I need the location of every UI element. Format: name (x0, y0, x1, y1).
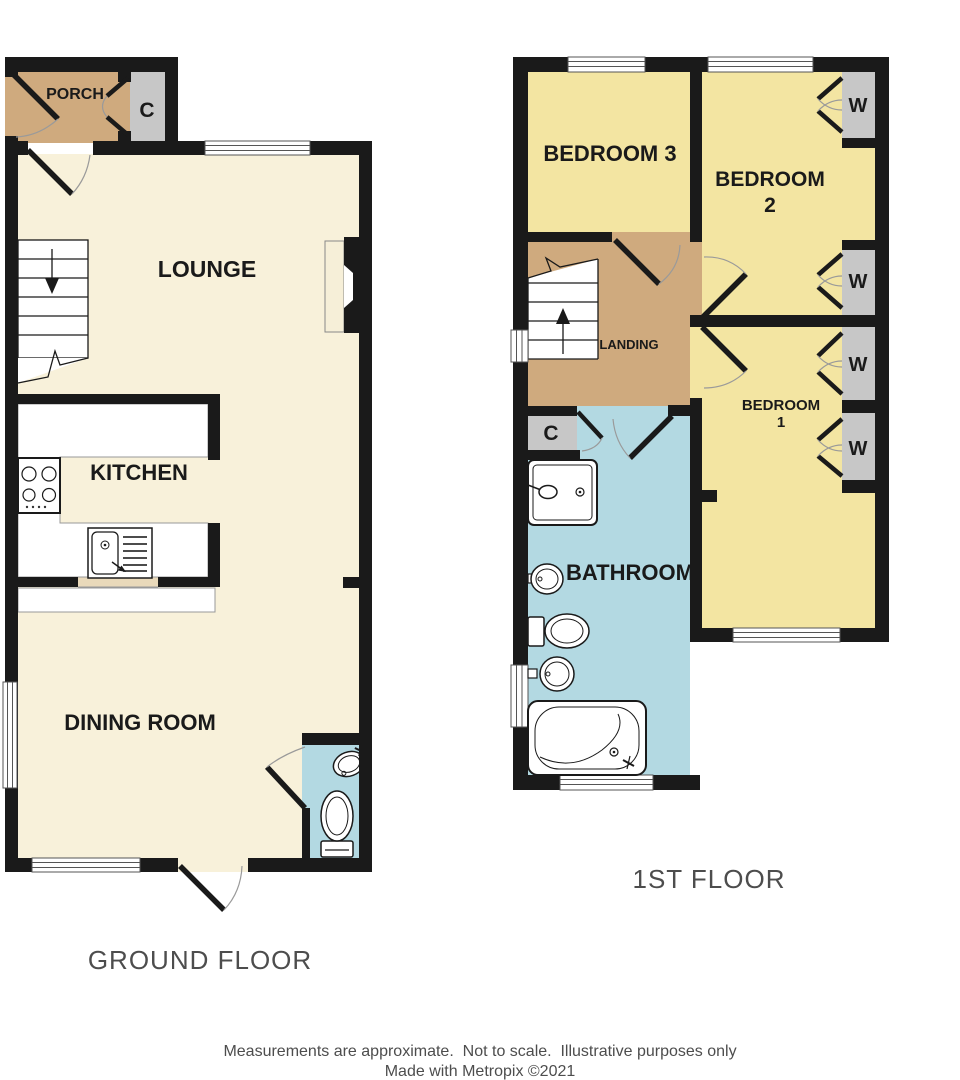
porch-floor (14, 71, 130, 143)
bedroom1-window (733, 628, 840, 642)
bath-icon (528, 701, 646, 775)
wardrobe2-label: W (849, 271, 868, 293)
disclaimer-text: Measurements are approximate. Not to sca… (223, 1043, 736, 1060)
hearth (325, 241, 344, 332)
dining-bottom-window (32, 858, 140, 872)
stairs-ground (18, 240, 88, 383)
bedroom1-label-line1: BEDROOM (742, 397, 820, 414)
porch-label: PORCH (46, 86, 104, 103)
ground-cupboard-label: C (139, 99, 154, 122)
wardrobe1-label: W (849, 95, 868, 117)
landing-window (511, 330, 528, 362)
dining-side-window (3, 682, 17, 788)
bedroom3-label: BEDROOM 3 (543, 141, 676, 166)
kitchen-label: KITCHEN (90, 460, 188, 485)
first-floor-title: 1ST FLOOR (632, 864, 785, 894)
bedroom2-window (708, 57, 813, 72)
floorplan-canvas: PORCH C LOUNGE KITCHEN DINING ROOM GROUN… (0, 0, 960, 1080)
bathroom-label: BATHROOM (566, 560, 694, 585)
bedroom2-label-line1: BEDROOM (715, 168, 825, 191)
first-floor-plan: BEDROOM 3 BEDROOM 2 LANDING BEDROOM 1 BA… (511, 57, 889, 894)
credit-text: Made with Metropix ©2021 (385, 1063, 576, 1080)
ground-floor-plan: PORCH C LOUNGE KITCHEN DINING ROOM GROUN… (3, 57, 372, 975)
footer: Measurements are approximate. Not to sca… (223, 1043, 736, 1080)
bathroom-side-window (511, 665, 528, 727)
kitchen-sink-icon (88, 528, 152, 578)
ground-floor-title: GROUND FLOOR (88, 945, 312, 975)
lounge-window (205, 141, 310, 155)
fireplace (325, 237, 359, 333)
shower-icon (528, 460, 597, 525)
toilet-icon (528, 614, 589, 648)
dining-room-label: DINING ROOM (64, 710, 216, 735)
bedroom1-label-line2: 1 (777, 414, 785, 431)
bedroom3-window (568, 57, 645, 72)
bathroom-bottom-window (560, 775, 653, 790)
wardrobe4-label: W (849, 438, 868, 460)
landing-label: LANDING (599, 337, 658, 352)
back-entrance-door (180, 866, 242, 910)
wc-toilet-icon (321, 791, 353, 857)
lounge-label: LOUNGE (158, 256, 256, 282)
hob-icon (18, 458, 60, 513)
first-cupboard-label: C (543, 422, 558, 445)
bedroom2-label-line2: 2 (764, 194, 776, 217)
floorplan-page: PORCH C LOUNGE KITCHEN DINING ROOM GROUN… (0, 0, 960, 1080)
wardrobe3-label: W (849, 354, 868, 376)
breakfast-bar (18, 588, 215, 612)
